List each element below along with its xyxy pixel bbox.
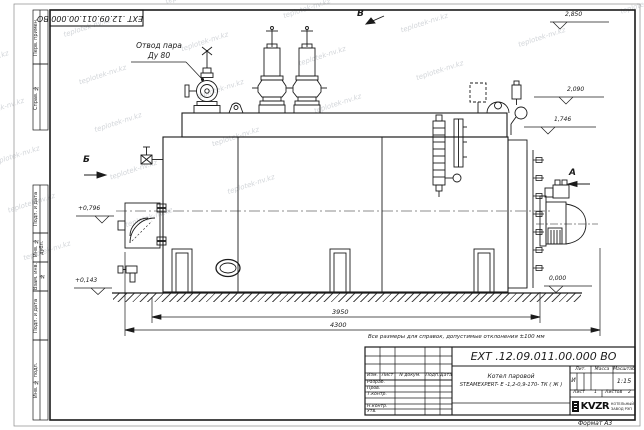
role-utv: Утв. bbox=[367, 410, 377, 415]
stamp-perv-primen: Перв. примен. bbox=[33, 10, 40, 64]
elevation-2850: 2,850 bbox=[565, 12, 582, 18]
logo-subtext-2: ЗАВОД РЭП bbox=[611, 407, 634, 411]
stamp-podp-data-1: Подп. и дата bbox=[33, 185, 40, 233]
kvzr-logo-text: KVZR bbox=[581, 401, 609, 412]
stamp-inv-dubl: Инв. № дубл. bbox=[33, 233, 40, 262]
role-tkontr: Т.контр. bbox=[367, 393, 387, 398]
role-prov: Пров. bbox=[367, 387, 380, 392]
stamp-vzam-inv: Взам. инв. № bbox=[33, 262, 40, 291]
dim-4300: 4300 bbox=[330, 322, 347, 329]
elevation-marks bbox=[74, 22, 609, 295]
lit-label: Лит. bbox=[570, 368, 591, 373]
col-izm: Изм. bbox=[365, 374, 380, 379]
manufacturer-logo: KVZR КОТЕЛЬНЫЙ ЗАВОД РЭП bbox=[572, 399, 634, 414]
product-model: STEAMEXPERT- Е -1,2-0,9-170- ТК ( Ж ) bbox=[452, 383, 570, 388]
lifting-lug bbox=[229, 103, 243, 113]
view-label-b: Б bbox=[83, 156, 90, 165]
sheet-value: 1 bbox=[594, 391, 597, 396]
elevation-0143: +0,143 bbox=[75, 278, 97, 284]
elevation-0796: +0,796 bbox=[78, 206, 100, 212]
title-designation: ЕХТ .12.09.011.00.000 ВО bbox=[452, 351, 635, 362]
drum-fittings bbox=[470, 81, 527, 135]
col-doc: N докум. bbox=[395, 374, 425, 379]
sheet-label: Лист bbox=[573, 391, 585, 396]
scale-value: 1:15 bbox=[613, 378, 635, 385]
lit-value: И bbox=[570, 378, 577, 384]
kvzr-logo-icon bbox=[572, 401, 579, 412]
callout-leader bbox=[131, 62, 204, 81]
product-name: Котел паровой bbox=[452, 374, 570, 380]
support-legs bbox=[112, 249, 582, 293]
col-data: Дата bbox=[440, 374, 452, 379]
level-gauge bbox=[433, 115, 467, 197]
drawing-sheet: teplotek-nv.kzteplotek-nv.kzteplotek-nv.… bbox=[0, 0, 644, 430]
drawing-linework bbox=[0, 0, 644, 430]
mass-label: Масса bbox=[591, 368, 613, 373]
view-label-a: А bbox=[569, 169, 576, 178]
role-razrab: Разраб. bbox=[367, 381, 385, 386]
doc-number-top: ЕХТ .12.09.011.00.000 ВО bbox=[50, 10, 143, 26]
elevation-2090: 2,090 bbox=[567, 87, 584, 93]
view-label-v: В bbox=[357, 10, 364, 19]
manhole bbox=[216, 260, 240, 277]
format-label: Формат А3 bbox=[578, 421, 612, 427]
scale-label: Масштаб bbox=[613, 368, 635, 373]
stamp-sprav-no: Справ. № bbox=[33, 64, 40, 130]
callout-steam-outlet-dn: Ду 80 bbox=[131, 52, 187, 60]
elevation-1746: 1,746 bbox=[554, 117, 571, 123]
reference-note: Все размеры для справок, допустимые откл… bbox=[368, 335, 545, 341]
stamp-inv-podl: Инв. № подл. bbox=[33, 340, 40, 420]
burner bbox=[536, 180, 598, 246]
rear-flange bbox=[508, 140, 544, 288]
safety-valve bbox=[252, 27, 292, 114]
stamp-podp-data-2: Подп. и дата bbox=[33, 291, 40, 340]
callout-steam-outlet: Отвод пара bbox=[131, 42, 187, 50]
elevation-0000: 0,000 bbox=[549, 276, 566, 282]
sheets-value: 2 bbox=[628, 391, 631, 396]
dim-3950: 3950 bbox=[332, 309, 349, 316]
col-podp: Подп. bbox=[425, 374, 440, 379]
col-list: Лист bbox=[380, 374, 395, 379]
sheets-label: Листов bbox=[605, 391, 622, 396]
safety-valve bbox=[287, 27, 327, 114]
